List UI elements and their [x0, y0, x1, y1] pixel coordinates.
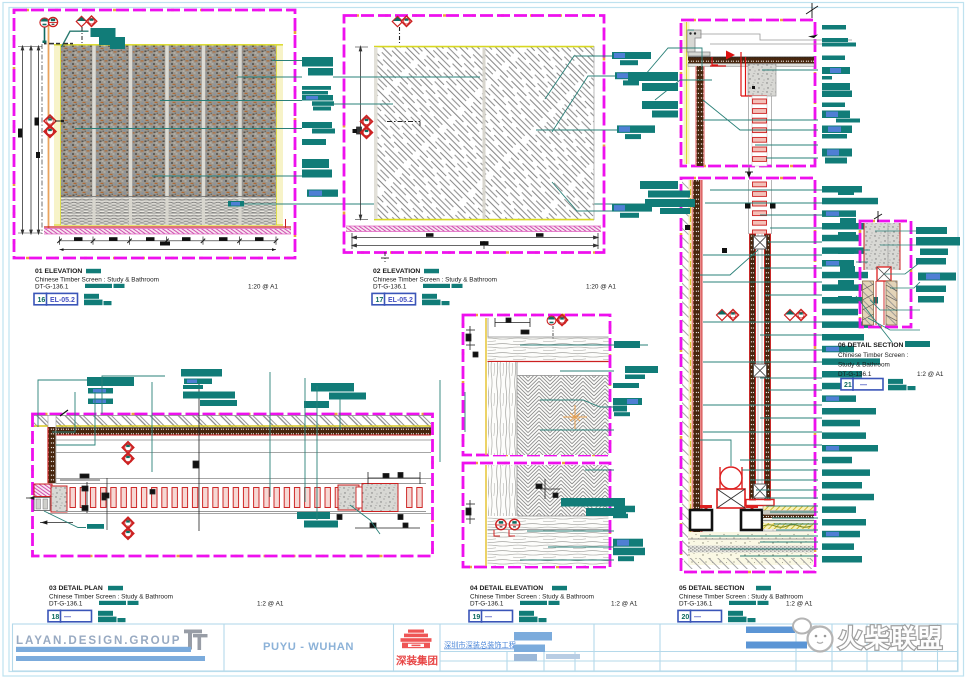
svg-text:—: —	[860, 382, 867, 389]
svg-text:深圳市深装总装饰工程: 深圳市深装总装饰工程	[444, 641, 516, 650]
svg-text:1:2 @ A1: 1:2 @ A1	[786, 601, 813, 608]
svg-text:Chinese Timber Screen : Study: Chinese Timber Screen : Study & Bathroom	[35, 276, 159, 283]
svg-text:EL-05.2: EL-05.2	[388, 297, 413, 304]
svg-text:17: 17	[376, 297, 384, 304]
svg-text:03 DETAIL PLAN: 03 DETAIL PLAN	[49, 585, 103, 592]
svg-text:—: —	[64, 614, 71, 621]
svg-text:EL-05.2: EL-05.2	[50, 297, 75, 304]
svg-text:深装集团: 深装集团	[396, 654, 438, 667]
svg-text:DT-G-136.1: DT-G-136.1	[470, 601, 504, 608]
svg-text:火柴联盟: 火柴联盟	[838, 625, 944, 653]
svg-text:DT-G-136.1: DT-G-136.1	[679, 601, 713, 608]
svg-text:1:2 @ A1: 1:2 @ A1	[257, 601, 284, 608]
svg-text:1:20 @ A1: 1:20 @ A1	[586, 284, 616, 291]
svg-text:—: —	[485, 614, 492, 621]
svg-text:DT-G-136.1: DT-G-136.1	[373, 284, 407, 291]
svg-text:18: 18	[52, 614, 60, 621]
svg-text:Chinese Timber Screen : Study: Chinese Timber Screen : Study & Bathroom	[679, 593, 803, 600]
svg-text:LAYAN.DESIGN.GROUP: LAYAN.DESIGN.GROUP	[16, 634, 181, 647]
svg-text:05 DETAIL SECTION: 05 DETAIL SECTION	[679, 585, 745, 592]
svg-text:20: 20	[682, 614, 690, 621]
svg-text:06 DETAIL SECTION: 06 DETAIL SECTION	[838, 342, 904, 349]
svg-text:DT-G-136.1: DT-G-136.1	[49, 601, 83, 608]
svg-text:DT-G-136.1: DT-G-136.1	[838, 371, 872, 378]
svg-text:19: 19	[473, 614, 481, 621]
svg-text:—: —	[694, 614, 701, 621]
svg-text:1:2 @ A1: 1:2 @ A1	[611, 601, 638, 608]
svg-text:01 ELEVATION: 01 ELEVATION	[35, 268, 82, 275]
svg-text:04 DETAIL ELEVATION: 04 DETAIL ELEVATION	[470, 585, 543, 592]
svg-text:21: 21	[844, 382, 852, 389]
svg-text:Study & Bathroom: Study & Bathroom	[838, 362, 890, 369]
svg-text:1:2 @ A1: 1:2 @ A1	[917, 371, 944, 378]
svg-text:Chinese Timber Screen : Study: Chinese Timber Screen : Study & Bathroom	[49, 593, 173, 600]
svg-text:16: 16	[38, 297, 46, 304]
svg-text:PUYU - WUHAN: PUYU - WUHAN	[263, 641, 354, 653]
svg-text:Chinese Timber Screen : Study: Chinese Timber Screen : Study & Bathroom	[470, 593, 594, 600]
svg-text:DT-G-136.1: DT-G-136.1	[35, 284, 69, 291]
svg-text:1:20 @ A1: 1:20 @ A1	[248, 284, 278, 291]
svg-text:02 ELEVATION: 02 ELEVATION	[373, 268, 420, 275]
svg-text:Chinese Timber Screen :: Chinese Timber Screen :	[838, 352, 909, 359]
svg-text:Chinese Timber Screen : Study: Chinese Timber Screen : Study & Bathroom	[373, 276, 497, 283]
